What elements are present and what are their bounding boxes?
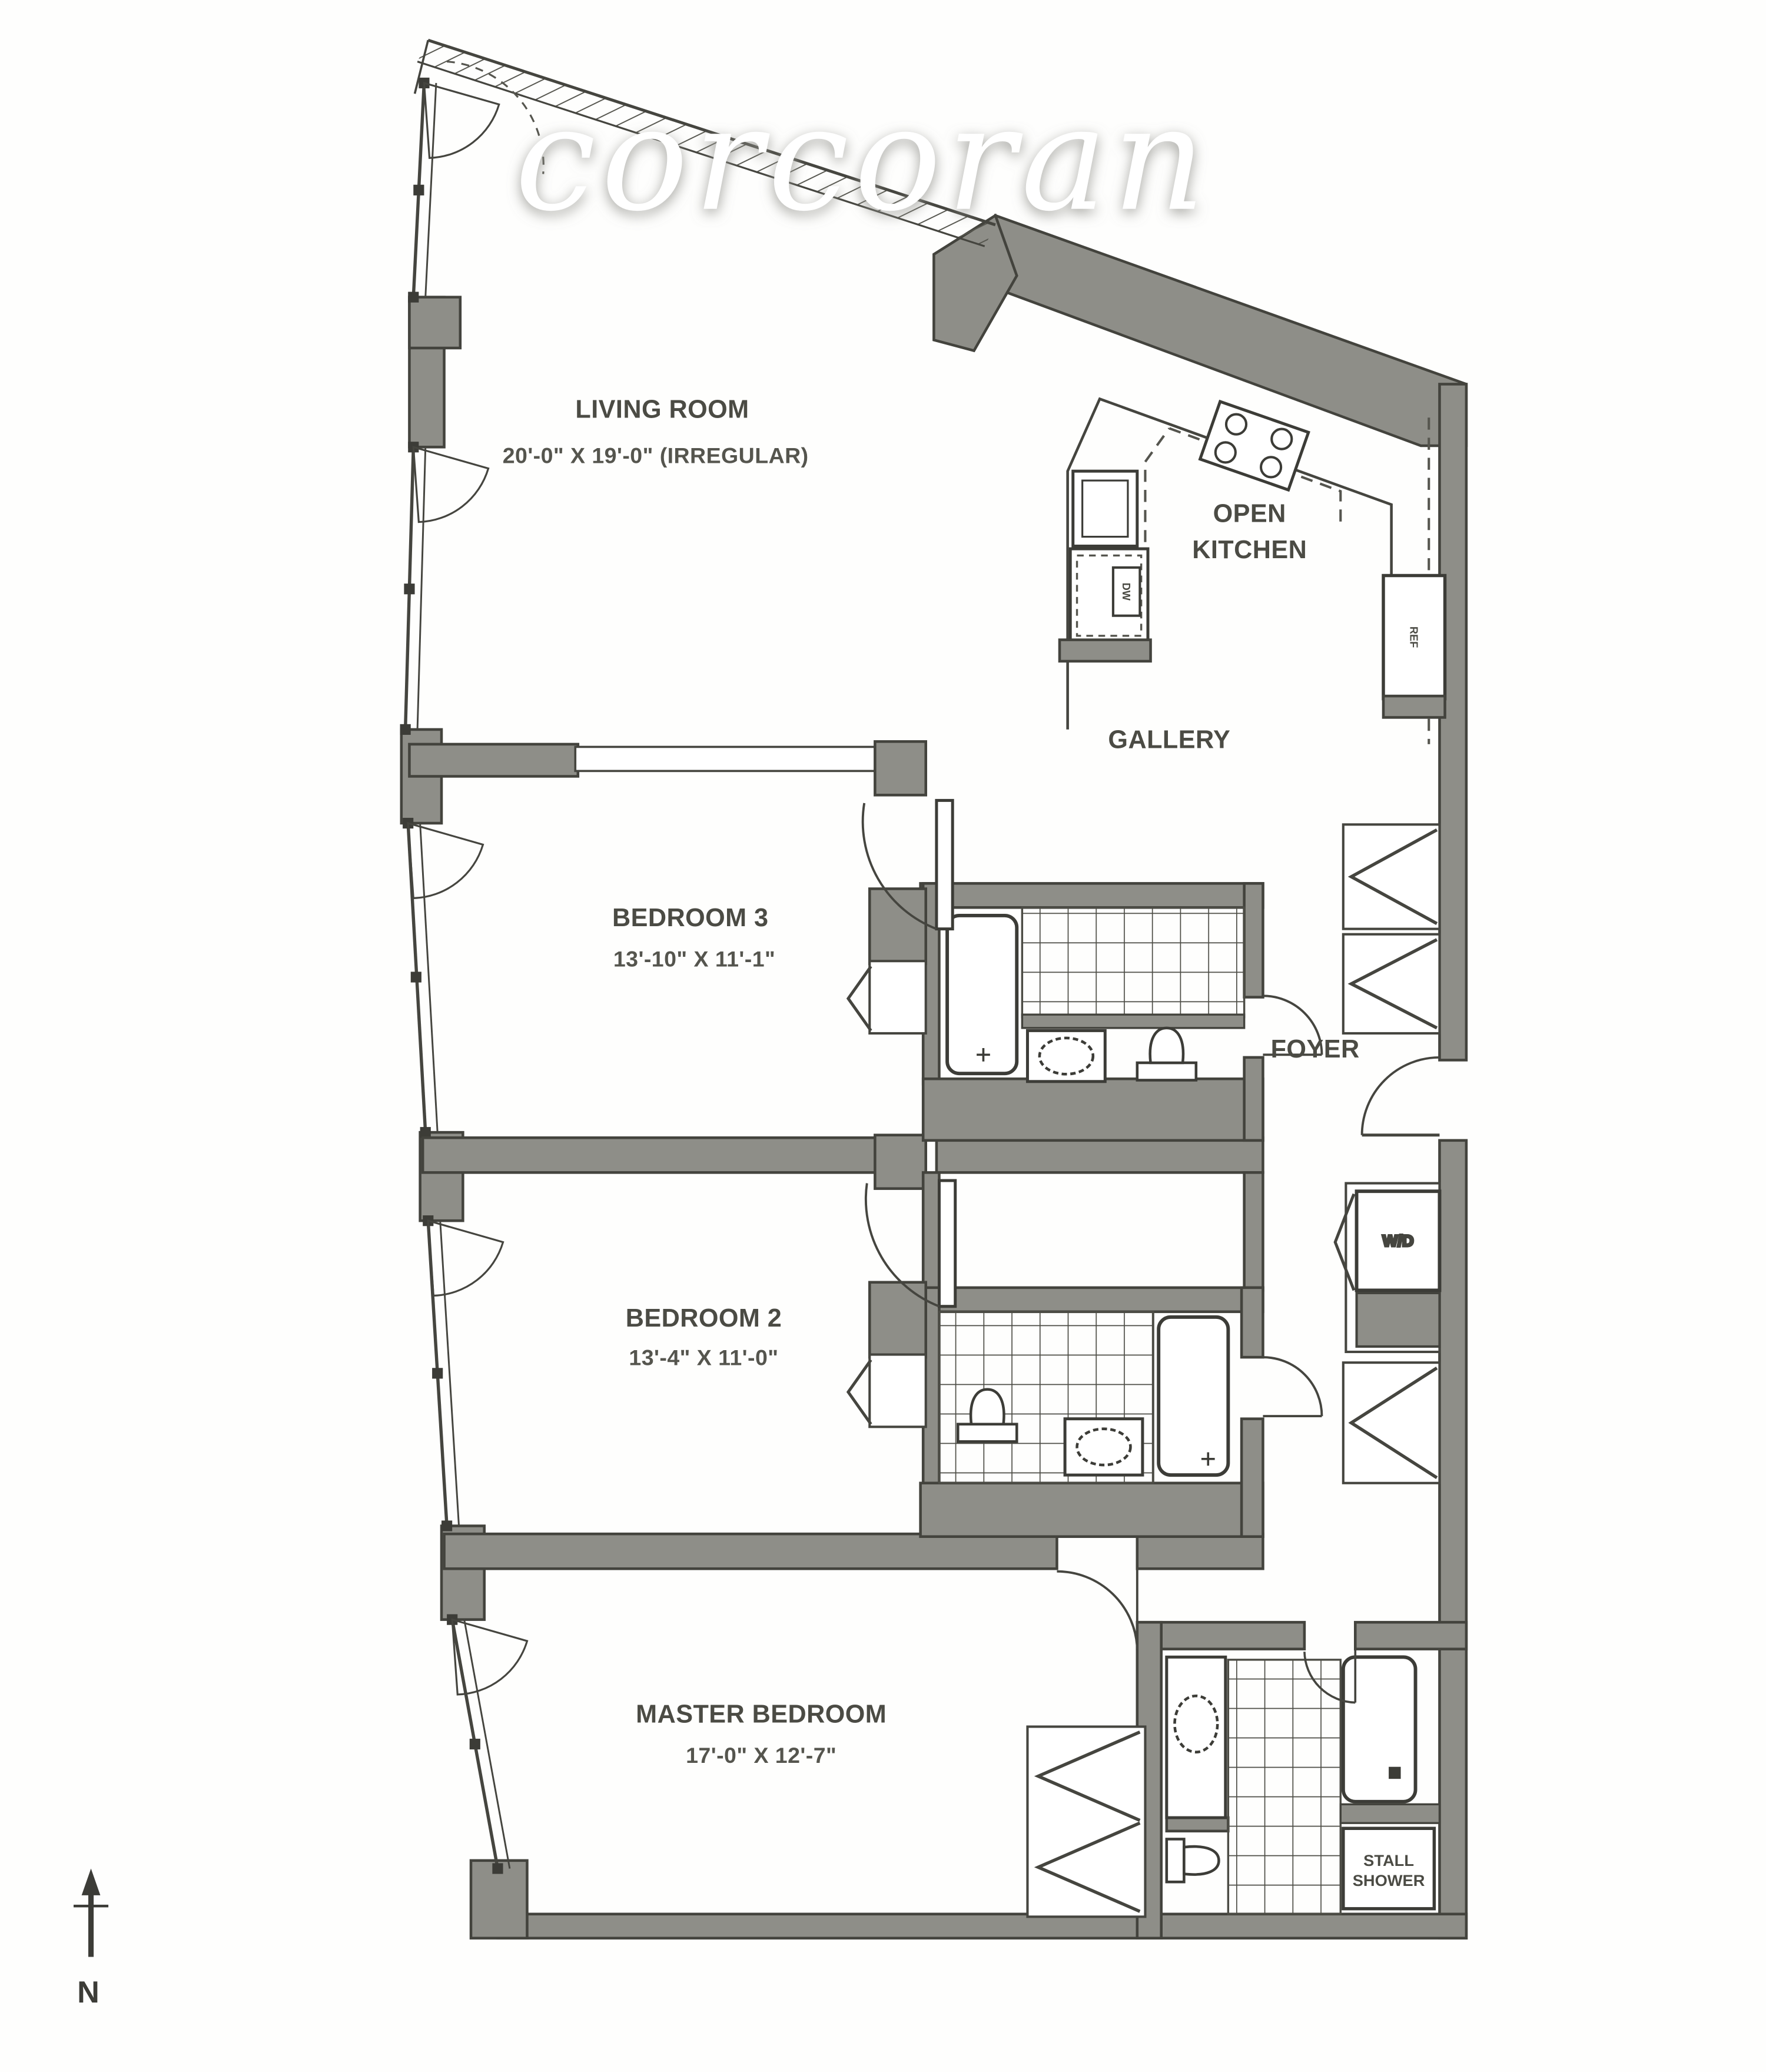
foyer-label: FOYER: [1271, 1035, 1360, 1063]
wall-right-upper: [1439, 384, 1466, 1060]
master-closet: [1027, 1727, 1145, 1917]
bedroom-2-label: BEDROOM 2: [626, 1304, 782, 1332]
washer-dryer-closet: W/D: [1335, 1183, 1439, 1352]
sink-icon: [1174, 1696, 1217, 1752]
counter-endcap: [1060, 640, 1151, 661]
wall-bed3-bed2: [423, 1138, 878, 1172]
gallery-label: GALLERY: [1108, 726, 1230, 754]
wall-right-lower: [1439, 1141, 1466, 1938]
floorplan-drawing: STALL SHOWER DW: [0, 0, 1766, 2072]
open-kitchen-label-2: KITCHEN: [1192, 536, 1307, 564]
wall-bottom: [497, 1914, 1466, 1938]
wall-pier: [409, 297, 460, 348]
entry-door: [1362, 1057, 1440, 1135]
sink-icon: [1040, 1038, 1093, 1074]
stall-shower-label-1: STALL: [1363, 1851, 1414, 1869]
refrigerator-icon: REF: [1383, 576, 1445, 699]
door-leaf: [937, 800, 952, 929]
bed2-closet: [848, 1355, 926, 1427]
floorplan-page: STALL SHOWER DW: [0, 0, 1766, 2072]
sink-icon: [1077, 1429, 1131, 1465]
bathtub-icon: [1343, 1657, 1416, 1802]
bedroom-3-dimensions: 13'-10" X 11'-1": [613, 946, 775, 971]
master-bedroom-label: MASTER BEDROOM: [636, 1700, 887, 1729]
north-arrow-head: [82, 1868, 101, 1895]
corcoran-watermark: corcoran: [515, 75, 1211, 243]
gallery-closet: [1343, 824, 1440, 929]
master-bathroom: STALL SHOWER: [1167, 1649, 1440, 1914]
washer-dryer-label: W/D: [1382, 1231, 1413, 1249]
north-label: N: [77, 1975, 99, 2010]
master-bedroom-dimensions: 17'-0" X 12'-7": [686, 1743, 836, 1768]
bed2-closet-back: [869, 1282, 925, 1357]
toilet-icon: [1167, 1839, 1219, 1882]
bathroom-2: [939, 1312, 1228, 1483]
bed3-closet: [848, 961, 926, 1033]
dishwasher-label: DW: [1120, 583, 1132, 601]
living-room-label: LIVING ROOM: [575, 395, 749, 423]
gallery-closet: [1343, 934, 1440, 1033]
wall-bed3-door-jamb: [875, 741, 925, 795]
bath2-wall-top: [921, 1288, 1263, 1312]
dishwasher-icon: DW: [1070, 549, 1148, 642]
stove-icon: [1200, 402, 1309, 490]
tile-floor: [1228, 1660, 1340, 1914]
bathtub-icon: [947, 916, 1017, 1073]
north-arrow: N: [74, 1868, 108, 2009]
foyer-closet: [1343, 1362, 1440, 1483]
door-leaf: [939, 1181, 955, 1307]
kitchen: DW REF: [1060, 399, 1445, 744]
tile-floor: [1022, 907, 1244, 1017]
bed3-closet-back: [869, 889, 925, 963]
bathtub-icon: [1158, 1317, 1228, 1475]
open-kitchen-label-1: OPEN: [1213, 500, 1286, 528]
wall-living-bed3: [409, 744, 577, 777]
bedroom-3-label: BEDROOM 3: [612, 904, 769, 932]
oven-icon: [1073, 471, 1137, 546]
toilet-icon: [1137, 1028, 1196, 1080]
living-room-dimensions: 20'-0" X 19'-0" (IRREGULAR): [503, 443, 809, 468]
stall-shower-label-2: SHOWER: [1353, 1871, 1425, 1889]
counter-endcap: [1383, 696, 1445, 717]
bathroom-3: [947, 907, 1244, 1082]
refrigerator-label: REF: [1408, 626, 1419, 648]
bath3-wall-top: [921, 883, 1263, 907]
wall-bed2-door-jamb: [875, 1135, 925, 1189]
wall-bed2-master: [444, 1534, 1057, 1569]
bedroom-2-dimensions: 13'-4" X 11'-0": [629, 1345, 778, 1370]
